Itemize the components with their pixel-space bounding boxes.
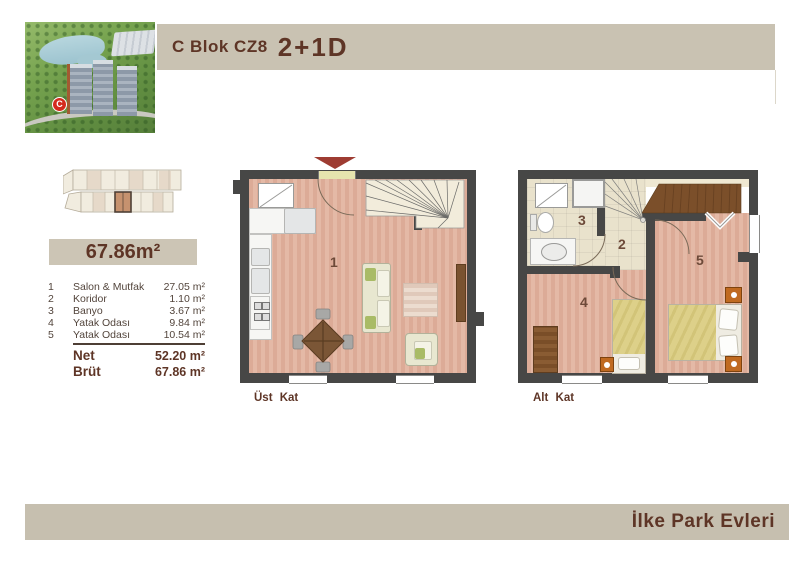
table-divider [73,343,205,345]
page-title: C Blok CZ8 2+1D [157,24,775,70]
brochure-page: C Blok CZ8 2+1D C [0,0,800,565]
net-label: Net [73,348,155,363]
table-row: 5 Yatak Odası 10.54 m² [48,329,205,341]
total-area-box: 67.86m² [49,239,197,265]
table-row: 2 Koridor 1.10 m² [48,293,205,305]
table-row: 3 Banyo 3.67 m² [48,305,205,317]
upper-floor-plan: 1 Üst Kat [238,156,480,414]
room-area: 3.67 m² [169,305,205,317]
header-band: C Blok CZ8 2+1D [157,24,775,70]
photo-tower-1 [67,64,92,114]
unit-type-title: 2+1D [278,32,349,63]
room-name: Yatak Odası [73,317,169,329]
upper-plan-linework [238,156,480,414]
lower-plan-linework [516,156,762,414]
room-area: 9.84 m² [169,317,205,329]
key-plan-drawing [63,168,190,220]
net-total-row: Net 52.20 m² [48,348,205,363]
aerial-photo: C [25,22,155,133]
room-number: 4 [48,317,73,329]
table-row: 1 Salon & Mutfak 27.05 m² [48,281,205,293]
block-title: C Blok CZ8 [172,37,268,57]
room-name: Yatak Odası [73,329,164,341]
room-number: 5 [48,329,73,341]
photo-tower-2 [93,60,113,116]
brut-total-row: Brüt 67.86 m² [48,364,205,379]
room-name: Banyo [73,305,169,317]
room-number: 1 [48,281,73,293]
brut-label: Brüt [73,364,155,379]
header-edge-line [775,70,776,104]
upper-plan-label: Üst Kat [254,392,298,404]
room-number: 3 [48,305,73,317]
photo-far-buildings [111,30,155,57]
room-area: 1.10 m² [169,293,205,305]
lower-plan-label: Alt Kat [533,392,574,404]
table-row: 4 Yatak Odası 9.84 m² [48,317,205,329]
photo-block-marker: C [52,97,67,112]
room-area: 10.54 m² [164,329,205,341]
room-number: 2 [48,293,73,305]
footer-band: İlke Park Evleri [25,504,789,540]
net-value: 52.20 m² [155,349,205,363]
lower-floor-plan: 3 2 4 5 [516,156,762,414]
brut-value: 67.86 m² [155,365,205,379]
dining-set [293,309,353,372]
room-name: Salon & Mutfak [73,281,164,293]
key-plan [63,168,190,220]
room-area: 27.05 m² [164,281,205,293]
photo-tower-3 [117,66,137,116]
room-name: Koridor [73,293,169,305]
